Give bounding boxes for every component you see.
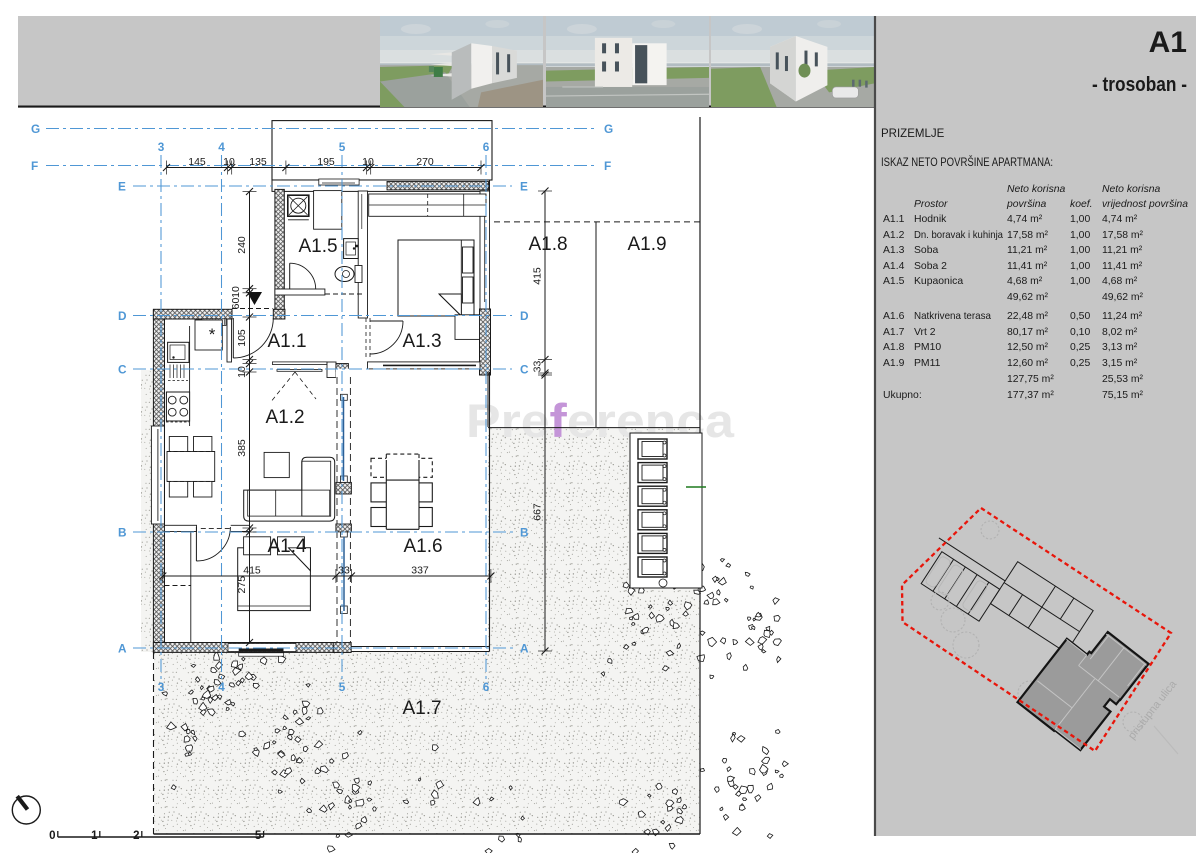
svg-text:3,15 m²: 3,15 m²: [1102, 358, 1138, 369]
svg-text:145: 145: [188, 156, 206, 168]
svg-text:F: F: [31, 159, 38, 173]
svg-text:4,68 m²: 4,68 m²: [1102, 276, 1138, 287]
svg-text:A: A: [118, 642, 127, 656]
svg-text:105: 105: [236, 329, 248, 347]
svg-text:6: 6: [483, 140, 490, 154]
svg-text:A1.2: A1.2: [265, 407, 304, 428]
svg-text:E: E: [520, 180, 528, 194]
svg-text:Prostor: Prostor: [914, 199, 948, 210]
svg-text:Ukupno:: Ukupno:: [883, 390, 922, 401]
svg-text:4,74 m²: 4,74 m²: [1007, 214, 1043, 225]
svg-text:A1.7: A1.7: [402, 698, 441, 719]
svg-text:G: G: [31, 122, 40, 136]
svg-text:5: 5: [339, 140, 346, 154]
svg-text:PRIZEMLJE: PRIZEMLJE: [881, 128, 945, 140]
svg-text:0,25: 0,25: [1070, 358, 1090, 369]
svg-text:G: G: [604, 122, 613, 136]
svg-text:koef.: koef.: [1070, 199, 1093, 210]
svg-text:270: 270: [416, 156, 434, 168]
svg-text:1,00: 1,00: [1070, 276, 1090, 287]
svg-text:4: 4: [218, 140, 225, 154]
svg-text:A1.8: A1.8: [883, 342, 905, 353]
svg-text:A1.3: A1.3: [883, 245, 905, 256]
svg-text:A1.1: A1.1: [883, 214, 905, 225]
svg-text:49,62 m²: 49,62 m²: [1102, 292, 1144, 303]
svg-text:75,15 m²: 75,15 m²: [1102, 390, 1144, 401]
svg-text:Hodnik: Hodnik: [914, 214, 947, 225]
svg-text:A1.8: A1.8: [528, 234, 567, 255]
svg-text:C: C: [520, 363, 529, 377]
svg-text:12,50 m²: 12,50 m²: [1007, 342, 1049, 353]
svg-text:5: 5: [339, 680, 346, 694]
svg-text:22,48 m²: 22,48 m²: [1007, 311, 1049, 322]
svg-text:Soba: Soba: [914, 245, 938, 256]
svg-text:A: A: [520, 642, 529, 656]
svg-text:10: 10: [230, 286, 242, 298]
svg-text:4,74 m²: 4,74 m²: [1102, 214, 1138, 225]
svg-text:127,75 m²: 127,75 m²: [1007, 374, 1054, 385]
svg-text:11,24 m²: 11,24 m²: [1102, 311, 1143, 322]
svg-text:11,21 m²: 11,21 m²: [1102, 245, 1143, 256]
svg-text:E: E: [118, 180, 126, 194]
svg-text:1,00: 1,00: [1070, 230, 1090, 241]
svg-text:A1.2: A1.2: [883, 230, 905, 241]
svg-text:0: 0: [49, 830, 55, 842]
svg-text:A1.5: A1.5: [298, 236, 337, 257]
svg-text:4: 4: [218, 680, 225, 694]
svg-text:Neto korisna: Neto korisna: [1007, 184, 1066, 195]
svg-text:3: 3: [158, 140, 165, 154]
svg-text:0,25: 0,25: [1070, 342, 1090, 353]
svg-text:ISKAZ NETO POVRŠINE APARTMANA:: ISKAZ NETO POVRŠINE APARTMANA:: [881, 156, 1053, 169]
svg-text:11,41 m²: 11,41 m²: [1007, 261, 1048, 272]
svg-text:Vrt 2: Vrt 2: [914, 327, 936, 338]
svg-text:A1.4: A1.4: [883, 261, 905, 272]
svg-text:5: 5: [255, 830, 262, 842]
svg-text:177,37 m²: 177,37 m²: [1007, 390, 1054, 401]
svg-text:1,00: 1,00: [1070, 261, 1090, 272]
svg-text:0,10: 0,10: [1070, 327, 1090, 338]
svg-text:240: 240: [236, 236, 248, 254]
svg-text:60: 60: [230, 298, 242, 310]
svg-text:415: 415: [532, 267, 544, 285]
svg-text:B: B: [520, 526, 529, 540]
svg-text:- trosoban -: - trosoban -: [1092, 73, 1187, 96]
svg-text:2: 2: [133, 830, 139, 842]
svg-text:11,21 m²: 11,21 m²: [1007, 245, 1048, 256]
svg-text:385: 385: [236, 439, 248, 457]
svg-text:667: 667: [532, 503, 544, 521]
svg-text:A1.4: A1.4: [267, 536, 307, 557]
svg-text:10: 10: [223, 156, 235, 168]
svg-text:D: D: [520, 309, 529, 323]
svg-text:vrijednost površina: vrijednost površina: [1102, 199, 1188, 210]
svg-text:A1: A1: [1149, 26, 1187, 59]
svg-text:33: 33: [532, 361, 544, 373]
svg-text:33: 33: [338, 565, 350, 577]
svg-text:415: 415: [243, 565, 261, 577]
svg-text:Neto korisna: Neto korisna: [1102, 184, 1161, 195]
svg-text:4,68 m²: 4,68 m²: [1007, 276, 1043, 287]
svg-text:*: *: [209, 325, 216, 344]
svg-text:PM10: PM10: [914, 342, 941, 353]
svg-text:A1.3: A1.3: [402, 331, 441, 352]
svg-text:11,41 m²: 11,41 m²: [1102, 261, 1143, 272]
svg-text:80,17 m²: 80,17 m²: [1007, 327, 1049, 338]
svg-text:A1.9: A1.9: [627, 234, 666, 255]
svg-text:3: 3: [158, 680, 165, 694]
svg-text:1: 1: [91, 830, 98, 842]
svg-text:površina: površina: [1006, 199, 1046, 210]
svg-text:A1.6: A1.6: [403, 536, 442, 557]
svg-text:A1.6: A1.6: [883, 311, 905, 322]
svg-text:17,58 m²: 17,58 m²: [1102, 230, 1144, 241]
svg-text:PM11: PM11: [914, 358, 941, 369]
svg-text:B: B: [118, 526, 127, 540]
svg-text:Soba 2: Soba 2: [914, 261, 947, 272]
svg-text:1,00: 1,00: [1070, 214, 1090, 225]
svg-text:A1.9: A1.9: [883, 358, 905, 369]
svg-text:25,53 m²: 25,53 m²: [1102, 374, 1144, 385]
svg-text:6: 6: [483, 680, 490, 694]
svg-text:49,62 m²: 49,62 m²: [1007, 292, 1049, 303]
svg-text:195: 195: [317, 156, 335, 168]
svg-text:135: 135: [249, 156, 267, 168]
svg-text:C: C: [118, 363, 127, 377]
svg-text:12,60 m²: 12,60 m²: [1007, 358, 1049, 369]
svg-text:337: 337: [411, 565, 429, 577]
svg-text:D: D: [118, 309, 127, 323]
svg-text:8,02 m²: 8,02 m²: [1102, 327, 1138, 338]
svg-text:17,58 m²: 17,58 m²: [1007, 230, 1049, 241]
svg-text:3,13 m²: 3,13 m²: [1102, 342, 1138, 353]
svg-text:A1.5: A1.5: [883, 276, 905, 287]
svg-text:0,50: 0,50: [1070, 311, 1090, 322]
svg-text:275: 275: [236, 576, 248, 594]
svg-text:F: F: [604, 159, 611, 173]
svg-text:10: 10: [362, 156, 374, 168]
svg-text:1,00: 1,00: [1070, 245, 1090, 256]
svg-text:Kupaonica: Kupaonica: [914, 276, 963, 287]
svg-text:Dn. boravak i kuhinja: Dn. boravak i kuhinja: [914, 230, 1003, 241]
svg-text:A1.1: A1.1: [267, 331, 306, 352]
svg-text:Natkrivena terasa: Natkrivena terasa: [914, 311, 991, 322]
svg-text:A1.7: A1.7: [883, 327, 905, 338]
